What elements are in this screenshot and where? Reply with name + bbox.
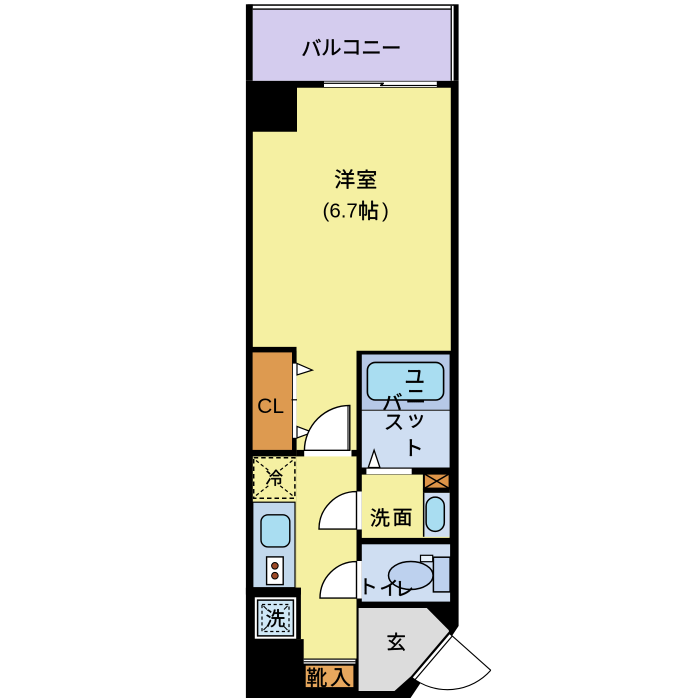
svg-text:): )	[382, 199, 389, 222]
svg-text:CL: CL	[257, 395, 284, 418]
svg-text:(6.7: (6.7	[323, 199, 358, 222]
